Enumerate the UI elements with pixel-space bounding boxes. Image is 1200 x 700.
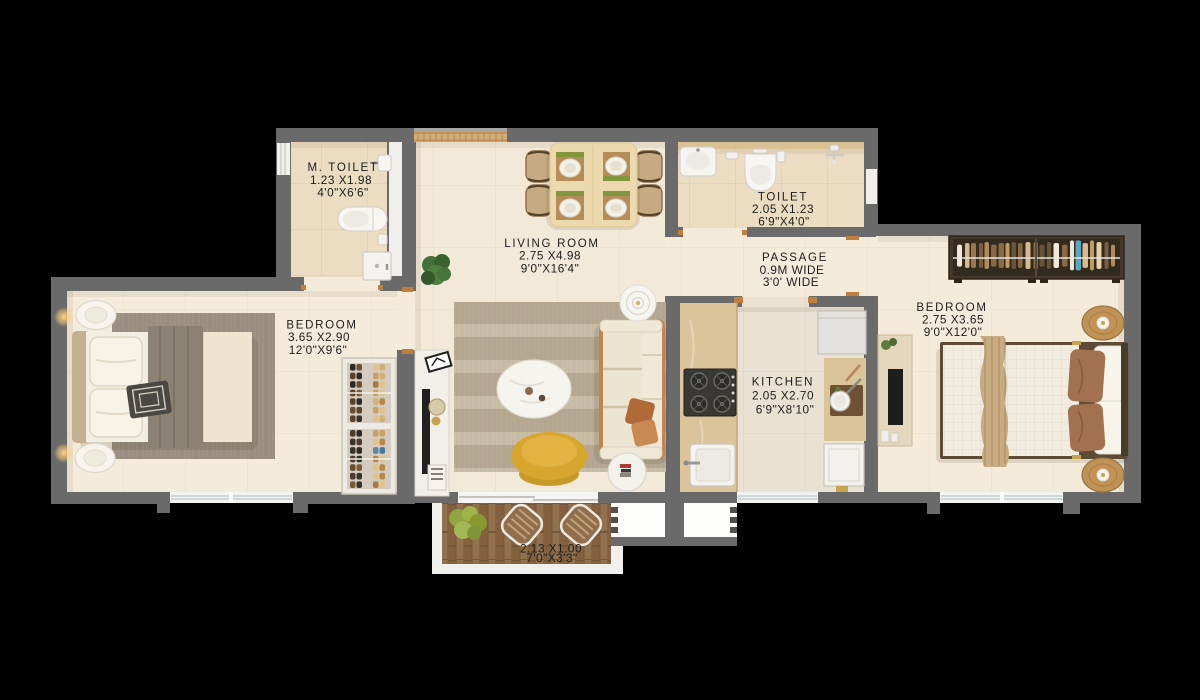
svg-text:6'9"X4'0": 6'9"X4'0"	[758, 215, 810, 229]
svg-text:3'0' WIDE: 3'0' WIDE	[763, 275, 819, 289]
svg-text:9'0"X12'0": 9'0"X12'0"	[924, 325, 983, 339]
svg-text:9'0"X16'4": 9'0"X16'4"	[521, 262, 580, 276]
svg-text:12'0"X9'6": 12'0"X9'6"	[289, 343, 348, 357]
svg-text:7'0"X3'3": 7'0"X3'3"	[526, 551, 578, 565]
svg-text:KITCHEN: KITCHEN	[752, 377, 814, 389]
svg-text:4'0"X6'6": 4'0"X6'6"	[317, 186, 369, 200]
svg-text:3.65 X2.90: 3.65 X2.90	[288, 330, 350, 344]
svg-text:6'9"X8'10": 6'9"X8'10"	[756, 403, 815, 417]
svg-text:2.75 X4.98: 2.75 X4.98	[519, 249, 581, 263]
svg-text:2.05 X2.70: 2.05 X2.70	[752, 389, 814, 403]
